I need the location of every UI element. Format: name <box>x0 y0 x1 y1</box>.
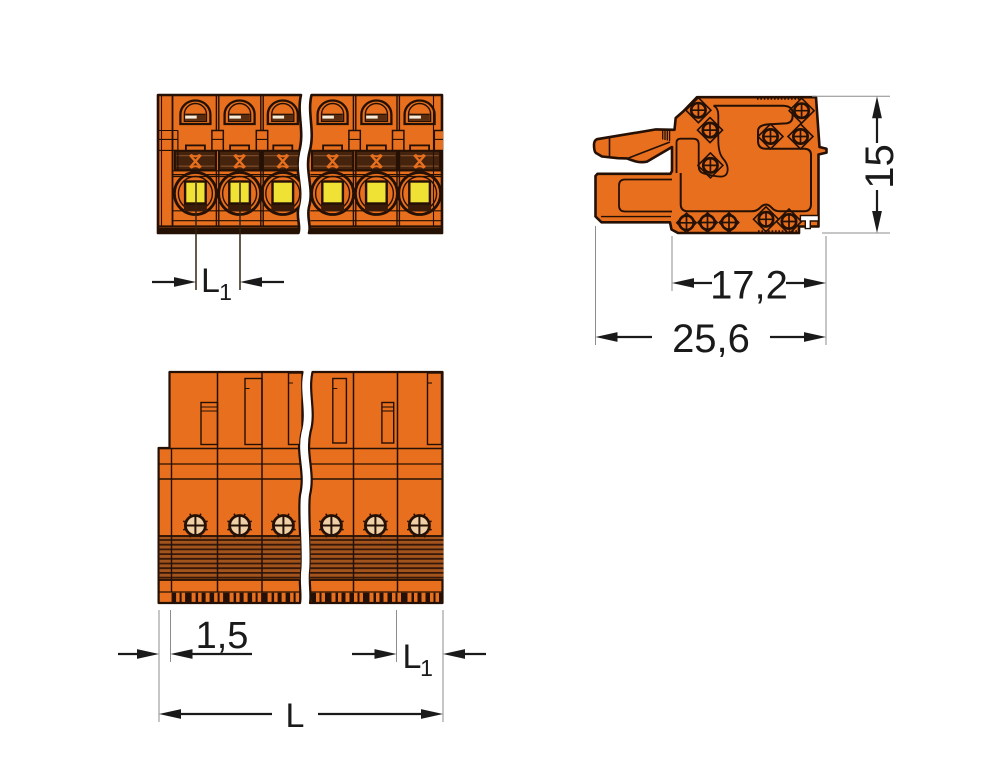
svg-text:L: L <box>403 638 422 676</box>
svg-text:1: 1 <box>420 655 433 681</box>
svg-text:15: 15 <box>858 144 902 189</box>
svg-text:25,6: 25,6 <box>672 317 750 361</box>
svg-text:L: L <box>286 697 305 735</box>
svg-text:17,2: 17,2 <box>710 264 788 308</box>
svg-text:1: 1 <box>219 279 232 305</box>
svg-text:1,5: 1,5 <box>196 615 249 657</box>
svg-text:L: L <box>201 262 220 300</box>
